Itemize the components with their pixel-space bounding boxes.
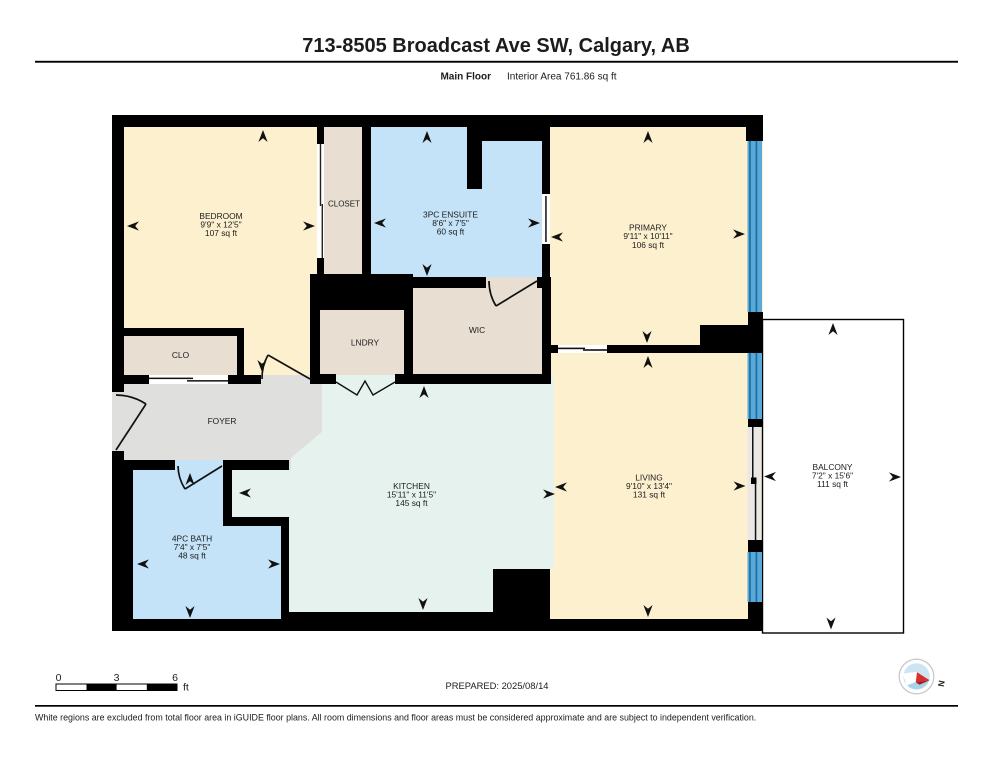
svg-text:60 sq ft: 60 sq ft xyxy=(437,227,465,237)
svg-text:131 sq ft: 131 sq ft xyxy=(633,489,666,499)
svg-text:ft: ft xyxy=(183,682,189,694)
svg-text:LNDRY: LNDRY xyxy=(351,338,380,348)
svg-text:6: 6 xyxy=(172,672,178,684)
svg-text:CLO: CLO xyxy=(172,350,190,360)
svg-text:WIC: WIC xyxy=(469,325,485,335)
svg-text:0: 0 xyxy=(56,672,62,684)
svg-text:713-8505 Broadcast Ave SW, Cal: 713-8505 Broadcast Ave SW, Calgary, AB xyxy=(302,35,690,57)
svg-text:PREPARED: 2025/08/14: PREPARED: 2025/08/14 xyxy=(445,680,548,691)
svg-text:3: 3 xyxy=(114,672,120,684)
svg-text:White regions are excluded fro: White regions are excluded from total fl… xyxy=(35,713,756,723)
svg-text:CLOSET: CLOSET xyxy=(328,200,360,209)
svg-text:107 sq ft: 107 sq ft xyxy=(205,228,238,238)
svg-text:FOYER: FOYER xyxy=(208,416,237,426)
svg-text:106 sq ft: 106 sq ft xyxy=(632,240,665,250)
svg-text:48 sq ft: 48 sq ft xyxy=(178,551,206,561)
svg-text:Main Floor: Main Floor xyxy=(440,72,491,83)
svg-text:145 sq ft: 145 sq ft xyxy=(395,498,428,508)
svg-text:111 sq ft: 111 sq ft xyxy=(817,479,849,489)
svg-text:Interior Area 761.86 sq ft: Interior Area 761.86 sq ft xyxy=(507,72,617,83)
